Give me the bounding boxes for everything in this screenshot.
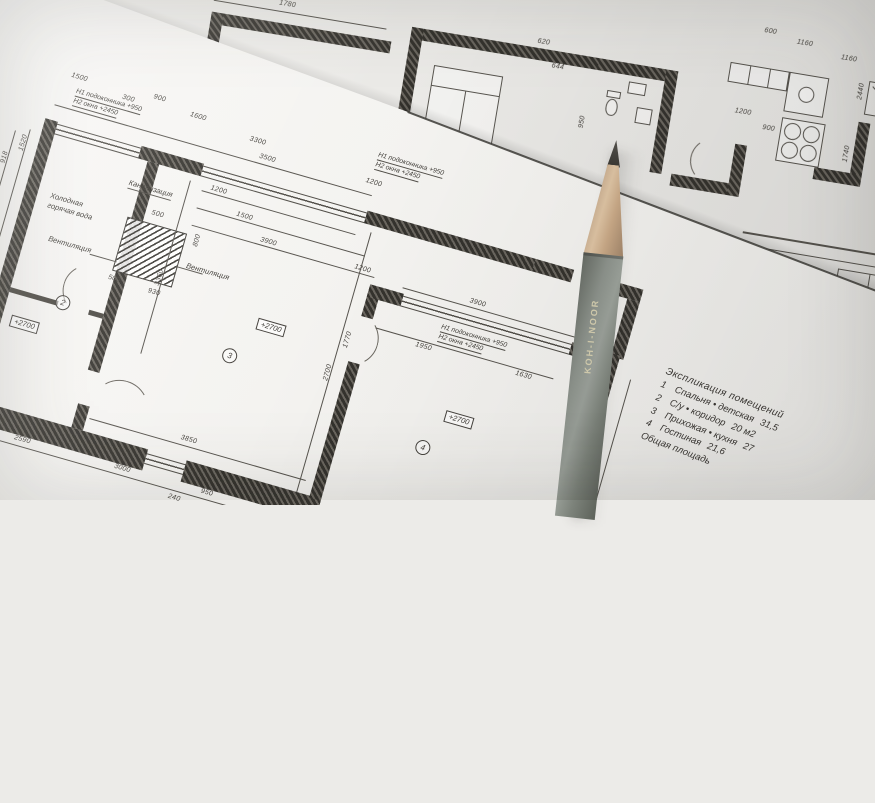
dimension-line xyxy=(0,431,303,528)
dimension-label: 950 xyxy=(578,115,587,129)
dimension-label: 918 xyxy=(0,150,10,164)
stove xyxy=(775,117,826,168)
dimension-label: 1520 xyxy=(18,134,29,152)
dimension-label: 500 xyxy=(151,209,165,219)
elevation-mark: +2700 xyxy=(443,410,474,430)
elevation-mark: +2700 xyxy=(9,315,40,335)
dimension-label: 3900 xyxy=(358,583,376,594)
wall-interior xyxy=(309,361,360,501)
dimension-label: 620 xyxy=(537,38,551,47)
room-number-4: 4 xyxy=(414,438,433,457)
dimension-label: 1600 xyxy=(189,111,207,122)
dimension-label: 1160 xyxy=(840,54,857,64)
wall xyxy=(649,69,678,174)
dimension-label: 644 xyxy=(551,62,565,71)
dimension-label: 1200 xyxy=(365,177,383,188)
elevation-mark: +2700 xyxy=(255,318,286,338)
window-room2 xyxy=(52,123,142,158)
pencil-wood-cone xyxy=(583,163,633,259)
sink xyxy=(627,81,647,96)
wall xyxy=(410,27,601,71)
dimension-label: 900 xyxy=(762,124,776,133)
dimension-label: 900 xyxy=(153,93,167,103)
dimension-label: 800 xyxy=(192,233,202,247)
vent-label-left: Вентиляция xyxy=(47,234,92,255)
dimension-label: 300 xyxy=(243,512,257,522)
dimension-label: 600 xyxy=(764,27,778,36)
dimension-label: 3300 xyxy=(249,135,267,146)
wall-interior xyxy=(71,403,89,430)
wall-thin xyxy=(9,287,58,306)
dimension-label: 2440 xyxy=(856,83,866,101)
blueprint-photo: { "colors":{"paper_front":"#f6f5f2","pap… xyxy=(0,0,875,500)
wall xyxy=(532,259,574,283)
dimension-label: 1780 xyxy=(279,0,297,9)
toilet-bowl xyxy=(604,98,619,117)
room-explication: Экспликация помещений 1 Спальня • детска… xyxy=(639,366,875,539)
pencil-graphite-tip xyxy=(607,139,623,167)
wall xyxy=(364,211,536,272)
leader-line xyxy=(90,254,117,263)
dimension-label: 240 xyxy=(167,493,181,503)
room-number-3: 3 xyxy=(220,346,239,365)
dimension-line xyxy=(54,104,371,196)
dimension-label: 1200 xyxy=(734,107,752,117)
dimension-label: 2700 xyxy=(322,364,333,382)
dimension-label: 1500 xyxy=(70,72,88,83)
wall-left xyxy=(0,118,58,421)
dimension-label: 1160 xyxy=(796,39,813,49)
balcony-door xyxy=(144,453,185,475)
washing-machine xyxy=(634,107,652,125)
wall xyxy=(282,579,536,663)
stove-burners xyxy=(776,118,824,166)
dimension-label: 1740 xyxy=(842,145,852,163)
kitchen-counter xyxy=(727,62,789,92)
wall xyxy=(282,498,321,596)
toilet-tank xyxy=(606,90,621,99)
